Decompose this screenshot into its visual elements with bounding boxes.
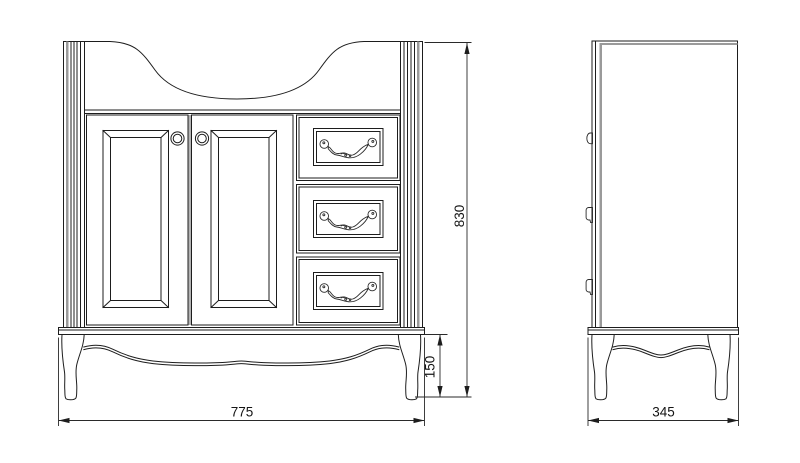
drawer-1-pull	[314, 129, 384, 166]
dim-leg-height-value: 150	[423, 356, 438, 379]
front-view	[59, 42, 425, 400]
door-gap	[188, 115, 191, 325]
drawer-3	[297, 257, 401, 325]
dim-height: 830	[415, 43, 472, 398]
dim-depth-value: 345	[652, 405, 675, 420]
front-apron	[84, 345, 399, 366]
drawer-2	[297, 185, 401, 254]
vanity-technical-drawing: 775 830 150 345	[0, 0, 800, 463]
sink-cutout-top-contour	[64, 42, 423, 100]
right-pilaster	[401, 42, 423, 328]
side-back-leg	[708, 335, 730, 400]
side-front-leg	[592, 335, 614, 400]
dim-leg-height: 150	[423, 335, 448, 398]
side-top-shade	[600, 43, 738, 45]
front-right-leg	[398, 335, 420, 400]
dim-width-value: 775	[231, 405, 254, 420]
left-door	[87, 115, 189, 325]
dim-height-value: 830	[452, 205, 467, 228]
left-pilaster	[64, 42, 85, 328]
right-door	[192, 115, 294, 325]
front-left-leg	[62, 335, 84, 400]
side-body	[592, 41, 738, 328]
drawing-sheet: 775 830 150 345	[0, 0, 800, 463]
dim-width: 775	[59, 338, 425, 427]
front-plinth	[59, 328, 425, 335]
drawer-2-pull	[314, 201, 384, 238]
side-view	[586, 41, 738, 400]
side-apron	[613, 346, 709, 358]
side-plinth	[588, 328, 739, 335]
top-rail	[85, 110, 401, 114]
drawer-3-pull	[314, 273, 384, 310]
side-door-edge-shade	[600, 43, 603, 328]
drawer-1	[297, 115, 401, 181]
